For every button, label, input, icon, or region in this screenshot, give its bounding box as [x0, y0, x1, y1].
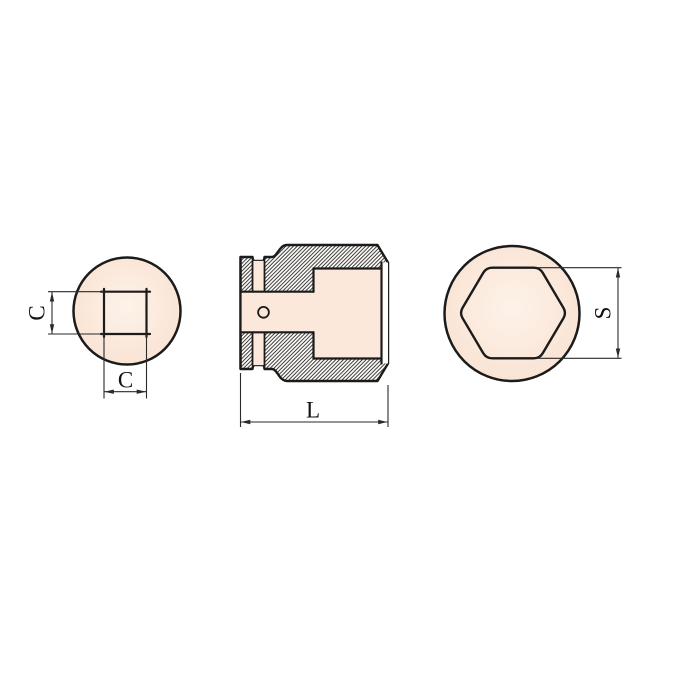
ring-groove-upper: [253, 261, 265, 292]
retaining-pin-hole: [258, 307, 269, 318]
drive-end-outline-circle: [74, 258, 181, 365]
hex-size-label: S: [592, 307, 615, 320]
socket-end-outline-circle: [445, 246, 580, 381]
ring-groove-lower: [253, 332, 265, 365]
square-height-label: C: [26, 305, 49, 320]
technical-drawing-canvas: C C L S: [0, 0, 700, 700]
hex-socket-cavity: [314, 269, 382, 359]
square-drive-end-view: [48, 258, 181, 399]
square-width-label: C: [118, 369, 133, 392]
square-drive-passage: [241, 292, 314, 333]
overall-length-label: L: [306, 399, 320, 422]
socket-drawing-svg: [0, 0, 700, 700]
